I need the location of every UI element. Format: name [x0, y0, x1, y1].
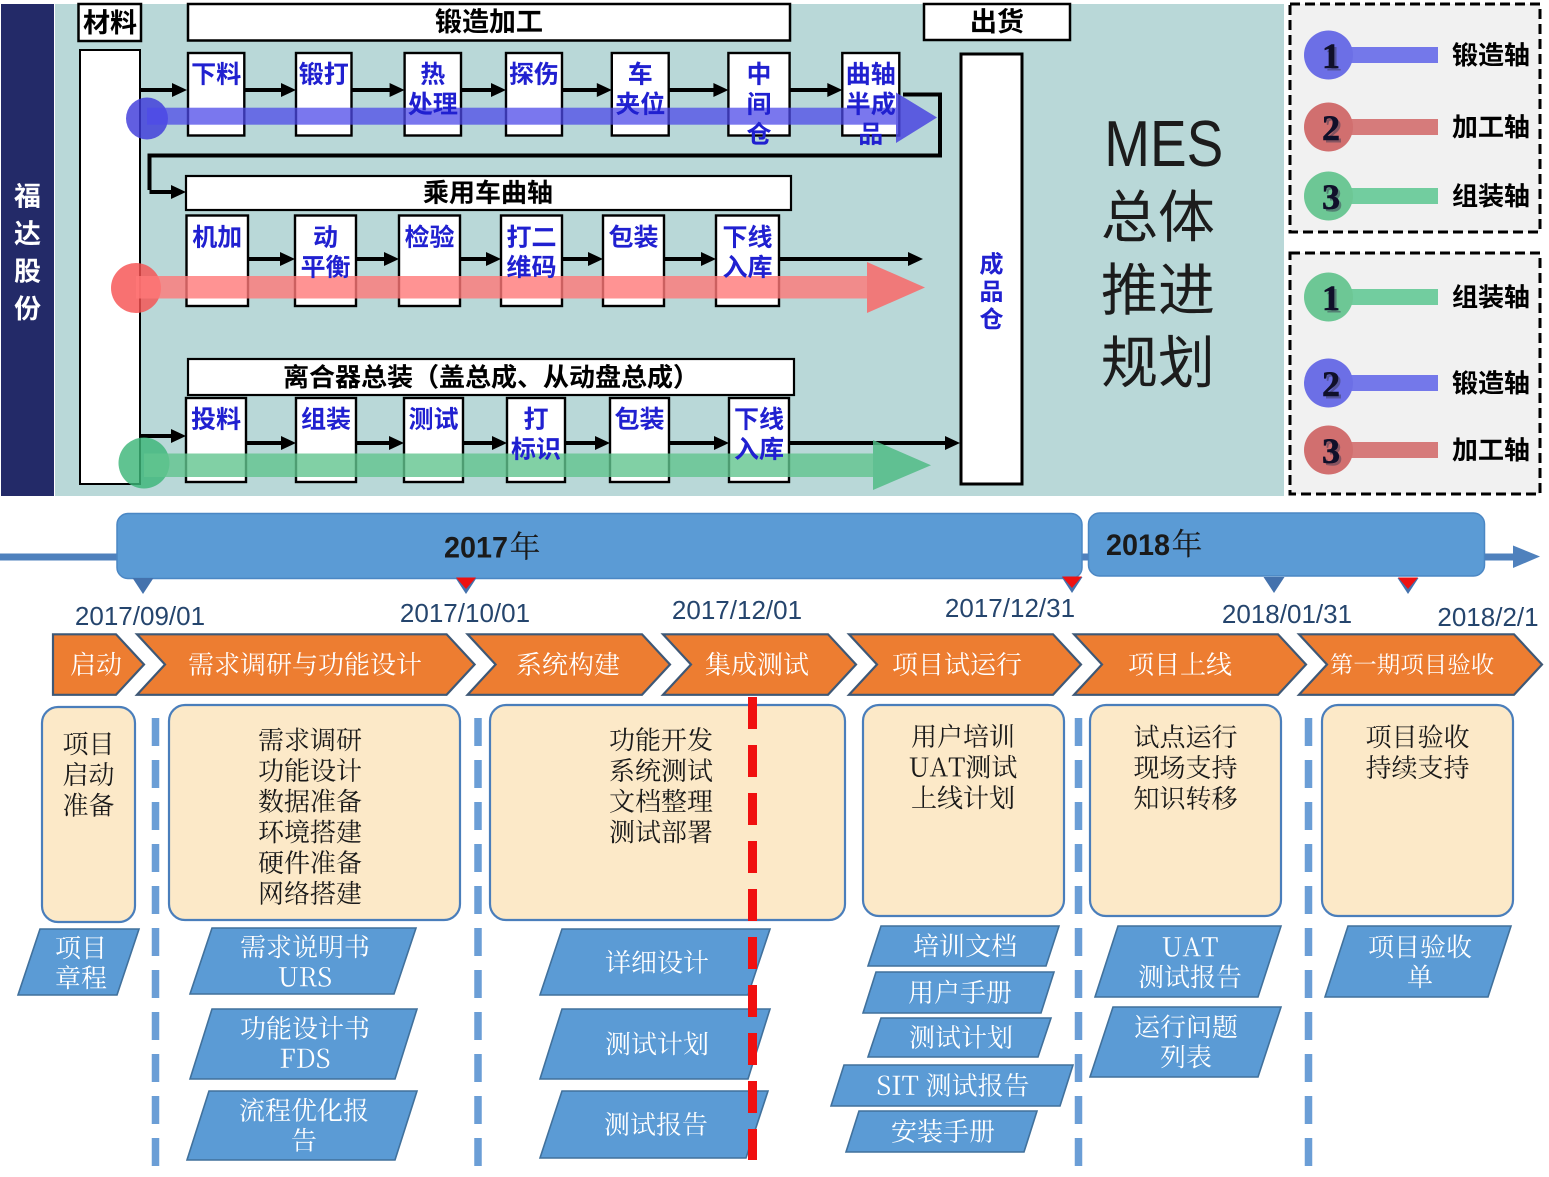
svg-text:MES: MES: [1104, 107, 1223, 180]
svg-text:1: 1: [1322, 278, 1340, 318]
svg-text:2017/10/01: 2017/10/01: [400, 598, 530, 628]
svg-text:2: 2: [1322, 108, 1340, 148]
svg-text:2017/09/01: 2017/09/01: [75, 601, 205, 631]
svg-text:2: 2: [1322, 364, 1340, 404]
svg-text:2017/12/01: 2017/12/01: [672, 595, 802, 625]
svg-text:2018/01/31: 2018/01/31: [1222, 599, 1352, 629]
svg-text:2017/12/31: 2017/12/31: [945, 593, 1075, 623]
svg-text:3: 3: [1322, 431, 1340, 471]
svg-text:2018/2/1: 2018/2/1: [1437, 602, 1538, 632]
svg-text:2017: 2017: [444, 532, 508, 565]
svg-text:2018: 2018: [1106, 529, 1170, 562]
svg-text:3: 3: [1322, 177, 1340, 217]
svg-text:1: 1: [1322, 36, 1340, 76]
